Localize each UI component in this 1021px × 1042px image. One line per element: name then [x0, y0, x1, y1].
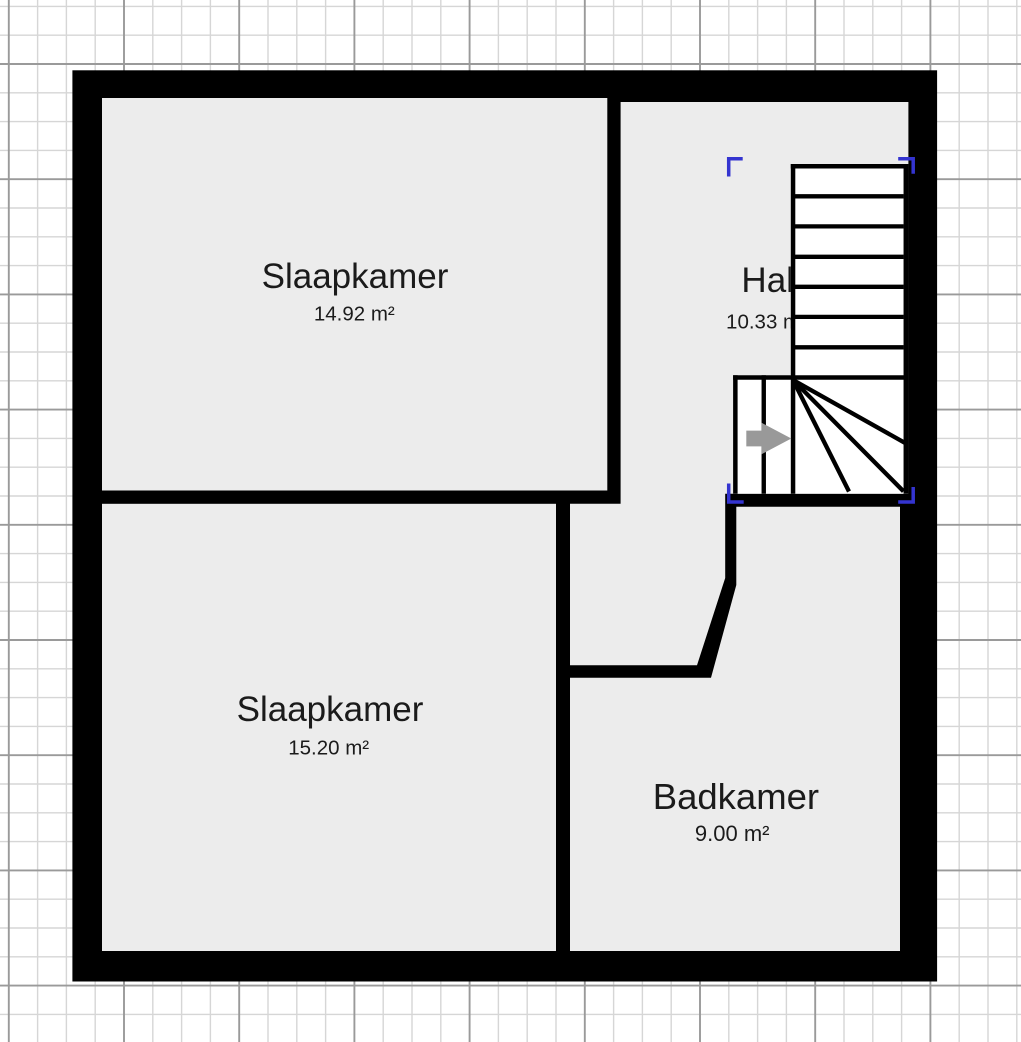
svg-text:Slaapkamer: Slaapkamer	[237, 690, 424, 729]
svg-text:15.20 m²: 15.20 m²	[288, 737, 369, 760]
svg-text:Badkamer: Badkamer	[653, 776, 819, 817]
svg-text:14.92 m²: 14.92 m²	[314, 303, 395, 326]
svg-text:Slaapkamer: Slaapkamer	[262, 257, 449, 296]
svg-text:9.00 m²: 9.00 m²	[695, 821, 770, 846]
svg-text:Hal: Hal	[741, 261, 794, 300]
